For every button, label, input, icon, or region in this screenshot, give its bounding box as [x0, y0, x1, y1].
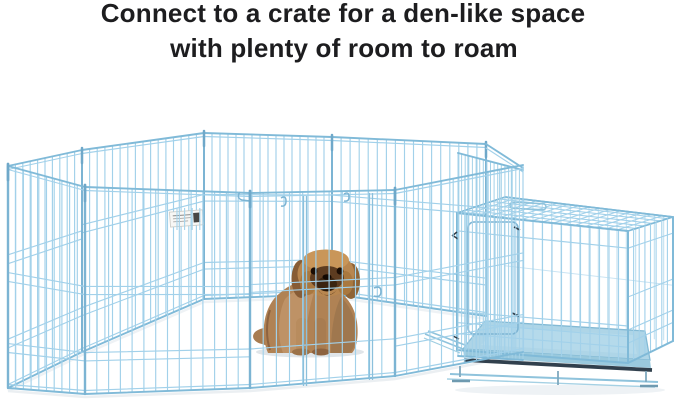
svg-text:with plenty of room to roam: with plenty of room to roam: [169, 33, 518, 63]
svg-text:Connect to a crate for a den-l: Connect to a crate for a den-like space: [101, 0, 586, 28]
